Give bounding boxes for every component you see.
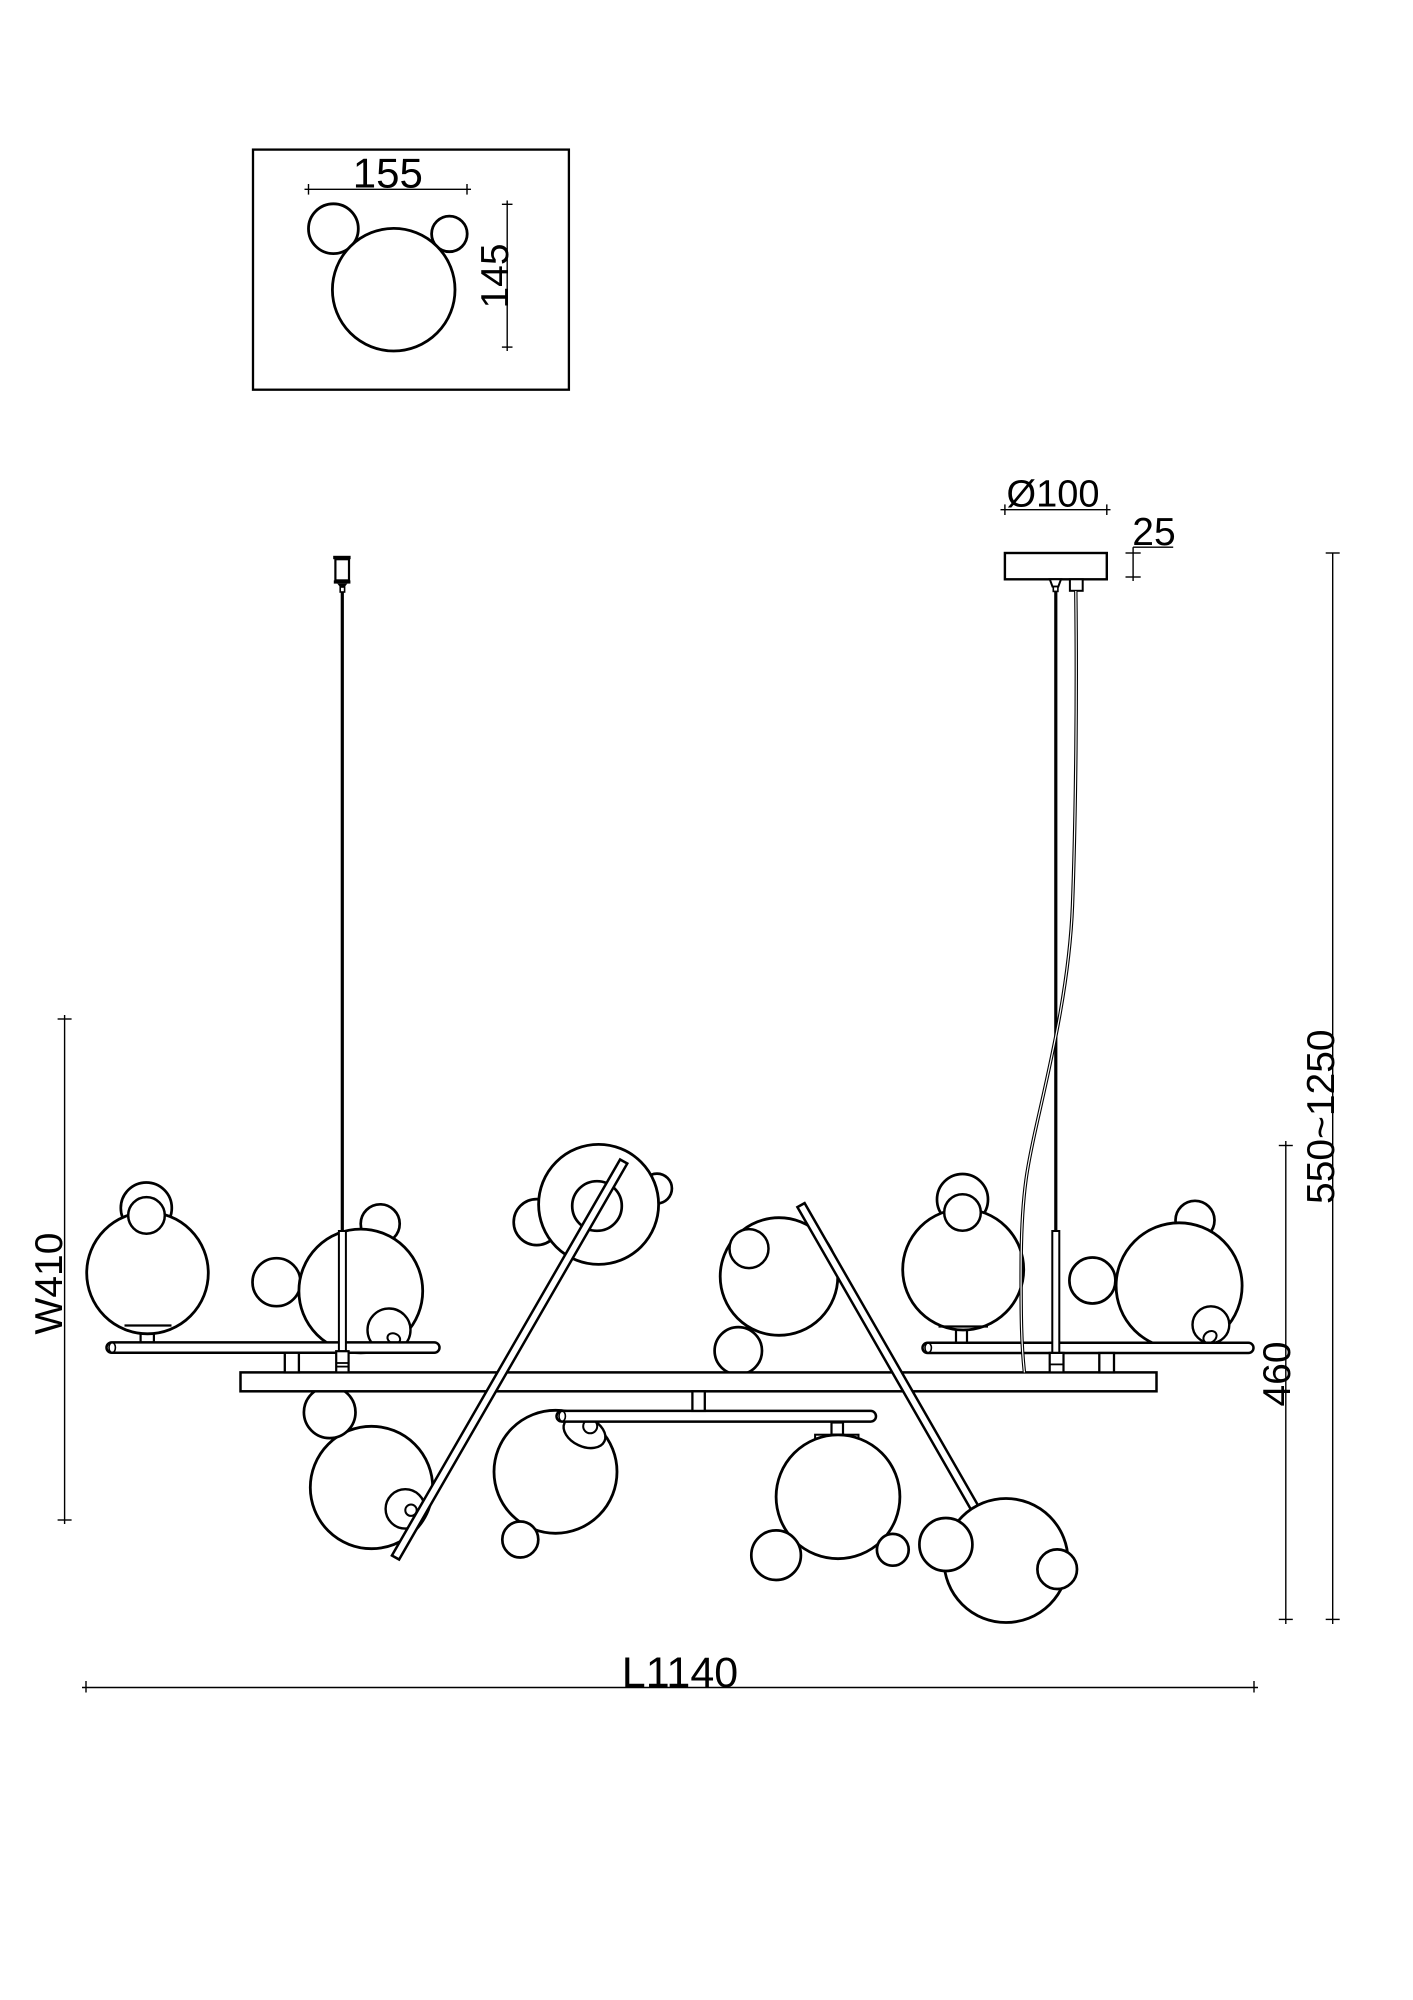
svg-text:550~1250: 550~1250 <box>1300 1029 1343 1204</box>
svg-text:145: 145 <box>474 243 517 308</box>
svg-text:460: 460 <box>1256 1341 1299 1406</box>
svg-text:L1140: L1140 <box>622 1649 738 1697</box>
